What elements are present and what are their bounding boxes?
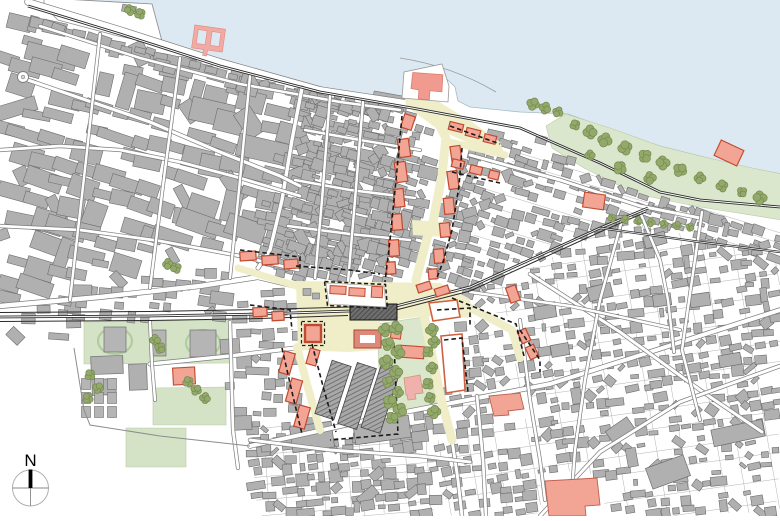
svg-text:N: N [24,451,36,470]
